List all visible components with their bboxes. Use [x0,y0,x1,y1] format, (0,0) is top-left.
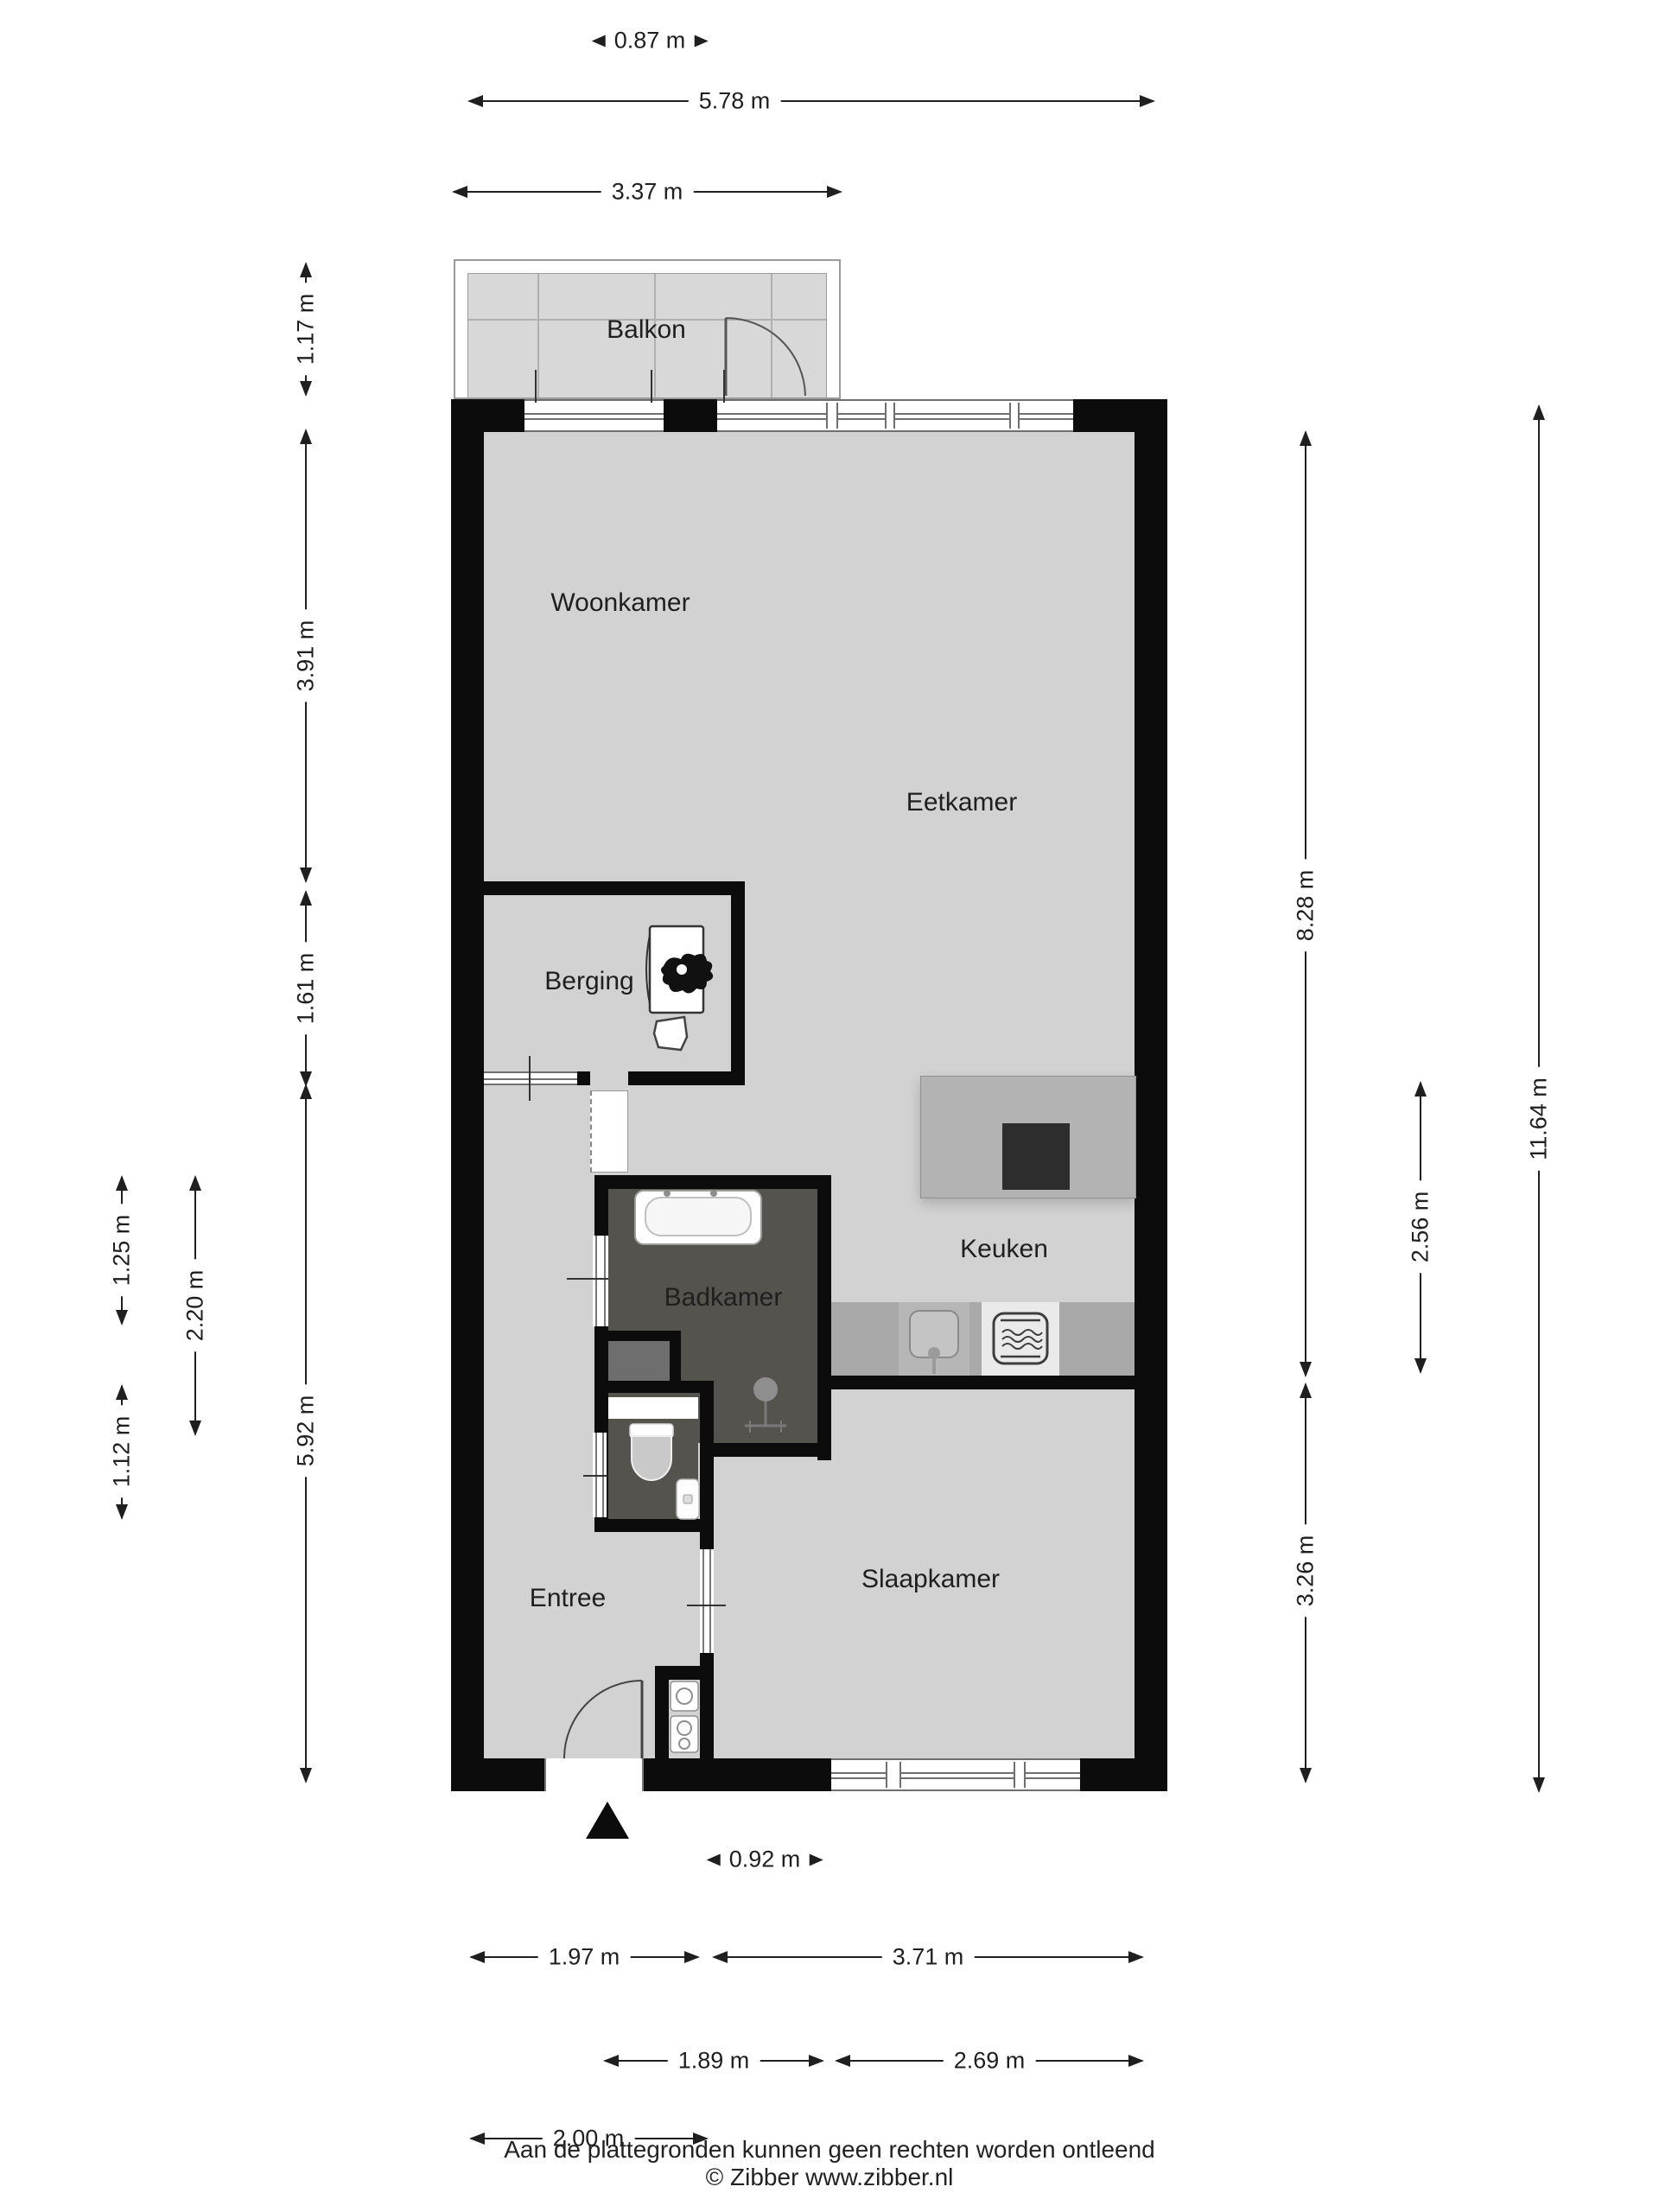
witness-tick [651,370,652,403]
witness-tick [583,1475,607,1477]
witness-tick [529,1056,531,1101]
shower [745,1377,786,1433]
detail-layer [0,0,1659,2212]
toilet [630,1424,673,1480]
meter-fixtures [671,1681,698,1752]
copyright-text: © Zibber www.zibber.nl [0,2164,1659,2191]
front-door [564,1681,642,1758]
witness-tick [687,1605,726,1606]
dim-balcony-depth: 1.17 m [305,264,307,395]
witness-tick [535,370,537,403]
dim-top-width: 5.78 m [469,100,1154,102]
dim-bottom-r1: 3.71 m [714,1956,1142,1958]
disclaimer-text: Aan de plattegronden kunnen geen rechten… [0,2136,1659,2164]
toilet-sink [677,1479,699,1519]
dim-right-upper: 8.28 m [1305,432,1306,1376]
room-label-eetkamer: Eetkamer [906,788,1017,817]
dim-total-height: 11.64 m [1538,406,1540,1791]
dim-woonkamer-height: 3.91 m [305,430,307,881]
dim-balcony-width: 3.37 m [454,191,841,193]
boiler [654,1017,687,1050]
room-label-slaapkamer: Slaapkamer [861,1565,1000,1594]
room-label-entree: Entree [530,1584,606,1613]
dim-bottom-l1: 1.97 m [471,1956,698,1958]
floorplan-page: Balkon [0,0,1659,2212]
dim-berging-height: 1.61 m [305,892,307,1085]
dim-top-small: 0.87 m [592,28,709,54]
dim-bottom-r2: 2.69 m [836,2060,1142,2062]
room-label-keuken: Keuken [960,1235,1048,1264]
oven-icon [994,1313,1047,1363]
room-label-berging: Berging [544,967,633,996]
balcony-door [726,318,805,396]
entrance-arrow [586,1802,629,1839]
washing-machine [646,926,713,1013]
room-label-woonkamer: Woonkamer [550,588,690,618]
room-label-badkamer: Badkamer [664,1283,783,1313]
dim-door-width: 0.92 m [707,1847,823,1873]
bathtub [635,1190,761,1244]
witness-tick [567,1278,608,1280]
witness-tick [723,370,725,403]
dim-bottom-l2: 1.89 m [605,2060,823,2062]
dim-lower-left-height: 5.92 m [305,1085,307,1782]
dim-keuken-height: 2.56 m [1420,1083,1421,1372]
dim-slaapkamer-height: 3.26 m [1305,1384,1306,1782]
dim-toilet-height: 1.12 m [121,1386,123,1518]
dim-badkamer-height: 2.20 m [194,1177,196,1434]
dim-badkamer-upper: 1.25 m [121,1177,123,1324]
faucet-icon [928,1347,940,1374]
